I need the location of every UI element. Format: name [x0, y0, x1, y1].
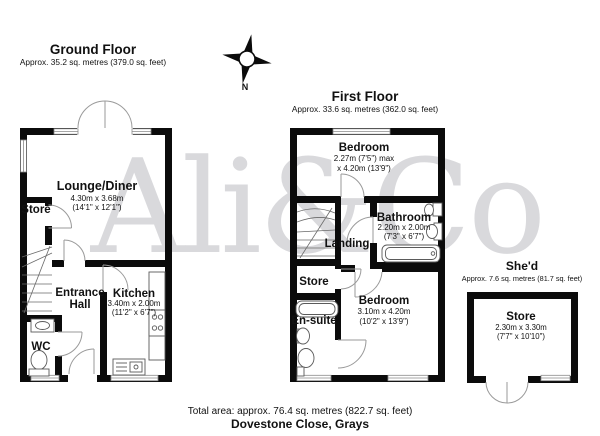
- shed-store-dim-imperial: (7'7" x 10'10"): [497, 332, 545, 341]
- ff-store-label: Store: [299, 276, 328, 288]
- entrance-hall-label-1: Entrance: [55, 287, 104, 299]
- address-text: Dovestone Close, Grays: [231, 417, 369, 431]
- shed-plan: She'd Approx. 7.6 sq. metres (81.7 sq. f…: [462, 259, 582, 403]
- first-floor-title: First Floor: [332, 89, 399, 104]
- bedroom2-dim-imperial: (10'2" x 13'9"): [359, 317, 409, 326]
- lounge-dim-metric: 4.30m x 3.68m: [71, 194, 124, 203]
- total-area-text: Total area: approx. 76.4 sq. metres (822…: [188, 406, 413, 417]
- store-label: Store: [21, 204, 50, 216]
- ensuite-label: En-suite: [291, 315, 336, 327]
- bedroom1-label: Bedroom: [339, 142, 389, 154]
- bathroom-dim-metric: 2.20m x 2.00m: [378, 223, 431, 232]
- shed-title: She'd: [506, 259, 538, 273]
- ensuite-fixtures: [296, 301, 338, 376]
- compass-north-label: N: [242, 82, 249, 92]
- entrance-hall-label-2: Hall: [69, 299, 90, 311]
- compass-icon: N: [218, 30, 276, 92]
- kitchen-sink-unit: [113, 359, 145, 375]
- floorplan-drawing: Ali&Co Ground Floor Approx. 35.2 sq. met…: [0, 0, 600, 436]
- ground-floor-title: Ground Floor: [50, 42, 137, 57]
- lounge-label: Lounge/Diner: [57, 179, 138, 193]
- footer: Total area: approx. 76.4 sq. metres (822…: [188, 406, 413, 431]
- kitchen-dim-metric: 3.40m x 2.00m: [108, 299, 161, 308]
- bedroom2-label: Bedroom: [359, 295, 409, 307]
- ground-floor-area: Approx. 35.2 sq. metres (379.0 sq. feet): [20, 57, 166, 67]
- lounge-dim-imperial: (14'1" x 12'1"): [72, 203, 122, 212]
- landing-label: Landing: [325, 238, 370, 250]
- shed-area: Approx. 7.6 sq. metres (81.7 sq. feet): [462, 274, 582, 283]
- bathroom-dim-imperial: (7'3" x 6'7"): [384, 232, 425, 241]
- first-floor-area: Approx. 33.6 sq. metres (362.0 sq. feet): [292, 104, 438, 114]
- bedroom2-dim-metric: 3.10m x 4.20m: [358, 307, 411, 316]
- bedroom1-dim-1: 2.27m (7'5") max: [334, 154, 394, 163]
- floorplan-page: Ali&Co Ground Floor Approx. 35.2 sq. met…: [0, 0, 600, 436]
- kitchen-dim-imperial: (11'2" x 6'7"): [112, 308, 156, 317]
- bedroom1-dim-2: x 4.20m (13'9"): [337, 164, 391, 173]
- wc-label: WC: [31, 341, 50, 353]
- shed-store-dim-metric: 2.30m x 3.30m: [495, 323, 547, 332]
- shed-store-label: Store: [506, 311, 535, 323]
- shed-openings: [486, 375, 570, 403]
